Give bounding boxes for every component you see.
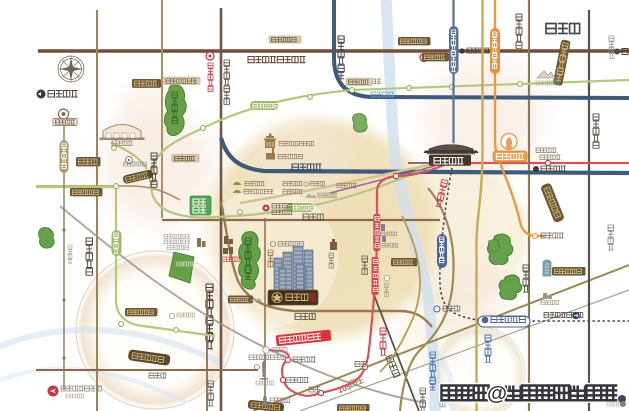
svg-text:@: @ (487, 382, 507, 405)
